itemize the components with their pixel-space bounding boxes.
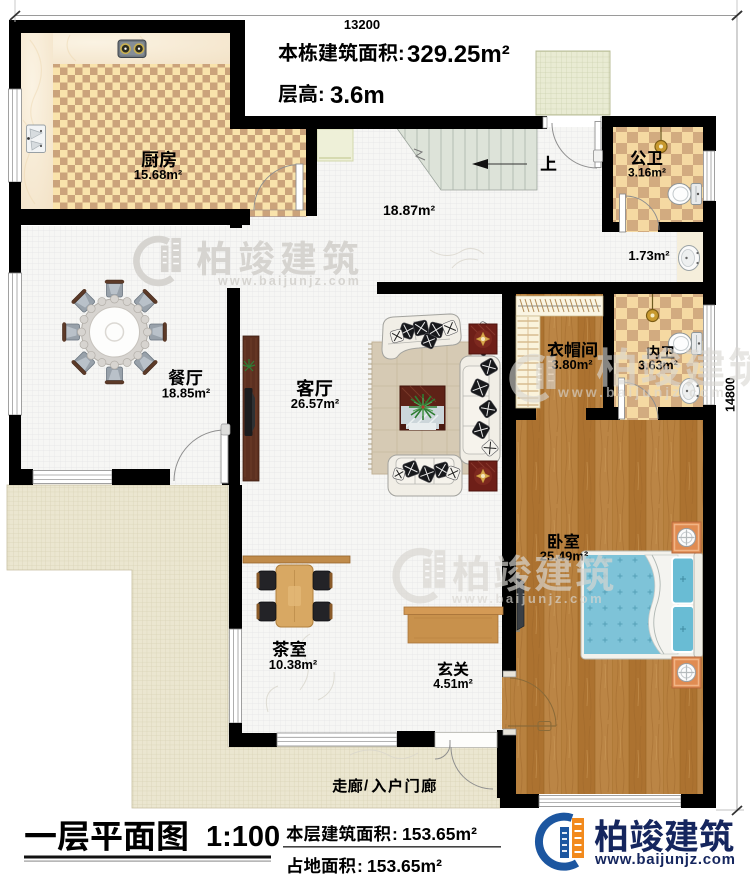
svg-text:1:100: 1:100 <box>206 821 280 853</box>
svg-text:153.65m²: 153.65m² <box>367 856 442 876</box>
svg-text:3.6m: 3.6m <box>330 82 385 109</box>
svg-text:3.16m²: 3.16m² <box>628 166 666 180</box>
svg-text:18.85m²: 18.85m² <box>162 386 211 401</box>
svg-text:18.87m²: 18.87m² <box>383 202 435 218</box>
svg-text:www.baijunjz.com: www.baijunjz.com <box>557 384 727 400</box>
svg-text:26.57m²: 26.57m² <box>291 396 340 411</box>
svg-text:www.baijunjz.com: www.baijunjz.com <box>594 851 736 868</box>
svg-text:13200: 13200 <box>344 17 380 32</box>
svg-text:10.38m²: 10.38m² <box>269 657 318 672</box>
svg-text:1.73m²: 1.73m² <box>628 248 670 263</box>
svg-text:4.51m²: 4.51m² <box>433 677 473 691</box>
svg-text:329.25m²: 329.25m² <box>407 41 510 68</box>
svg-text::: : <box>357 856 363 876</box>
svg-text::: : <box>392 824 398 844</box>
svg-text:153.65m²: 153.65m² <box>402 824 477 844</box>
svg-text::: : <box>398 43 405 65</box>
svg-text:www.baijunjz.com: www.baijunjz.com <box>217 274 361 288</box>
svg-text:15.68m²: 15.68m² <box>134 167 183 182</box>
svg-text:3.80m²: 3.80m² <box>551 357 593 372</box>
svg-text::: : <box>318 84 325 106</box>
svg-text:www.baijunjz.com: www.baijunjz.com <box>451 591 604 606</box>
